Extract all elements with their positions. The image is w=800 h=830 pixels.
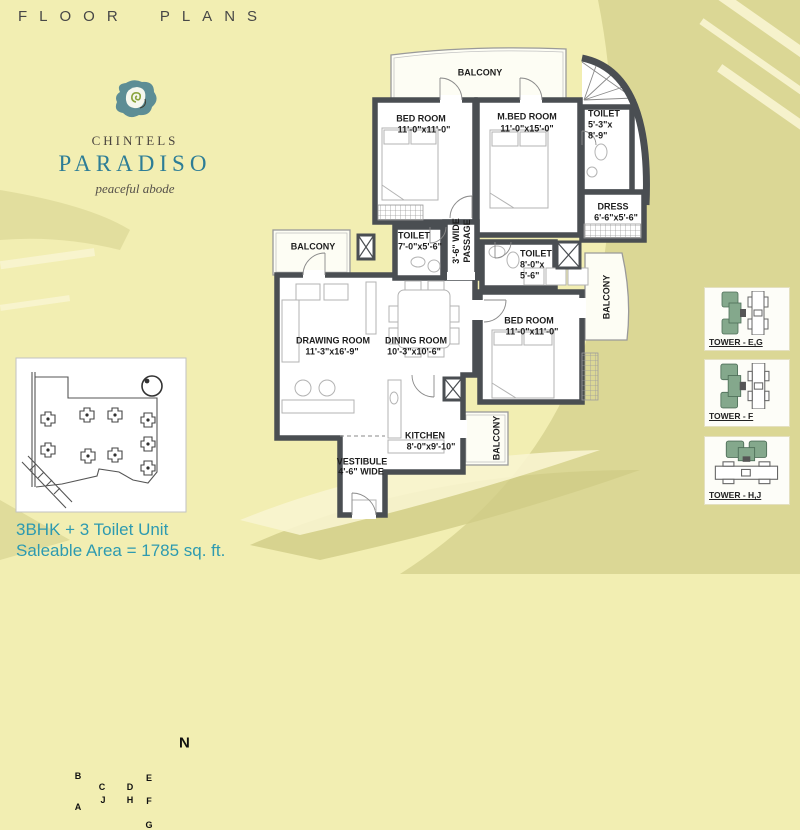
tower-letter: C — [99, 782, 106, 792]
brand-name: CHINTELS — [40, 133, 230, 149]
tower-letter: F — [146, 796, 152, 806]
tower-key-label: TOWER - F — [709, 411, 785, 421]
unit-info: 3BHK + 3 Toilet Unit Saleable Area = 178… — [16, 519, 225, 561]
tower-key-label: TOWER - H,J — [709, 490, 785, 500]
tower-letter: A — [75, 802, 82, 812]
tower-letter: H — [127, 795, 134, 805]
passage-label: 3'-6" WIDE PASSAGE — [451, 218, 473, 263]
toilet-m-name: TOILET — [588, 109, 620, 120]
dress-name: DRESS — [597, 202, 628, 213]
master-bedroom-dims: 11'-0"x15'-0" — [500, 124, 553, 135]
shell-logo-icon — [110, 78, 160, 120]
unit-type: 3BHK + 3 Toilet Unit — [16, 519, 225, 540]
dining-room-dims: 10'-3"x10'-6" — [387, 347, 441, 358]
tower-letter: B — [75, 771, 82, 781]
tower-letter: G — [145, 820, 152, 830]
tower-eg-plan-icon — [709, 291, 785, 335]
tower-key-f: TOWER - F — [704, 359, 790, 427]
toilet2-dims: 7'-0"x5'-6" — [398, 242, 442, 253]
kitchen-name: KITCHEN — [405, 431, 445, 442]
toilet3-name: TOILET — [520, 249, 552, 260]
balcony-left-label: BALCONY — [291, 242, 336, 253]
bed1-dims: 11'-0"x11'-0" — [398, 125, 451, 136]
balcony-right-label: BALCONY — [602, 275, 613, 320]
tower-key-label: TOWER - E,G — [709, 337, 785, 347]
toilet2-name: TOILET — [398, 231, 430, 242]
vestibule-dims: 4'-6" WIDE — [338, 467, 383, 478]
toilet3-dims1: 8'-0"x — [520, 260, 544, 271]
drawing-room-name: DRAWING ROOM — [296, 336, 370, 347]
bed1-name: BED ROOM — [396, 114, 446, 125]
tower-key-eg: TOWER - E,G — [704, 287, 790, 351]
kitchen-dims: 8'-0"x9'-10" — [407, 442, 456, 453]
floor-plan-brochure: { "header": { "title": "FLOOR PLANS" }, … — [0, 0, 800, 574]
toilet3-dims2: 5'-6" — [520, 271, 539, 282]
balcony-bottom-label: BALCONY — [492, 416, 503, 461]
compass-n-label: N — [179, 735, 190, 752]
brand-product: PARADISO — [40, 151, 230, 177]
master-bedroom-name: M.BED ROOM — [497, 112, 557, 123]
tower-letter: D — [127, 782, 134, 792]
brand-block: CHINTELS PARADISO peaceful abode — [40, 78, 230, 197]
tower-hj-plan-icon — [709, 440, 785, 488]
toilet-m-dims2: 8'-9" — [588, 131, 607, 142]
tower-letter: E — [146, 773, 152, 783]
tower-key-hj: TOWER - H,J — [704, 436, 790, 505]
balcony-top-label: BALCONY — [458, 68, 503, 79]
dress-dims: 6'-6"x5'-6" — [594, 213, 638, 224]
drawing-room-dims: 11'-3"x16'-9" — [305, 347, 358, 358]
toilet-m-dims1: 5'-3"x — [588, 120, 612, 131]
brand-tagline: peaceful abode — [40, 181, 230, 197]
tower-letter: J — [100, 795, 105, 805]
bed2-name: BED ROOM — [504, 316, 554, 327]
saleable-area: Saleable Area = 1785 sq. ft. — [16, 540, 225, 561]
page-title: FLOOR PLANS — [18, 8, 269, 25]
dining-room-name: DINING ROOM — [385, 336, 447, 347]
site-plan — [15, 357, 187, 513]
tower-f-plan-icon — [709, 363, 785, 409]
bed2-dims: 11'-0"x11'-0" — [506, 327, 559, 338]
